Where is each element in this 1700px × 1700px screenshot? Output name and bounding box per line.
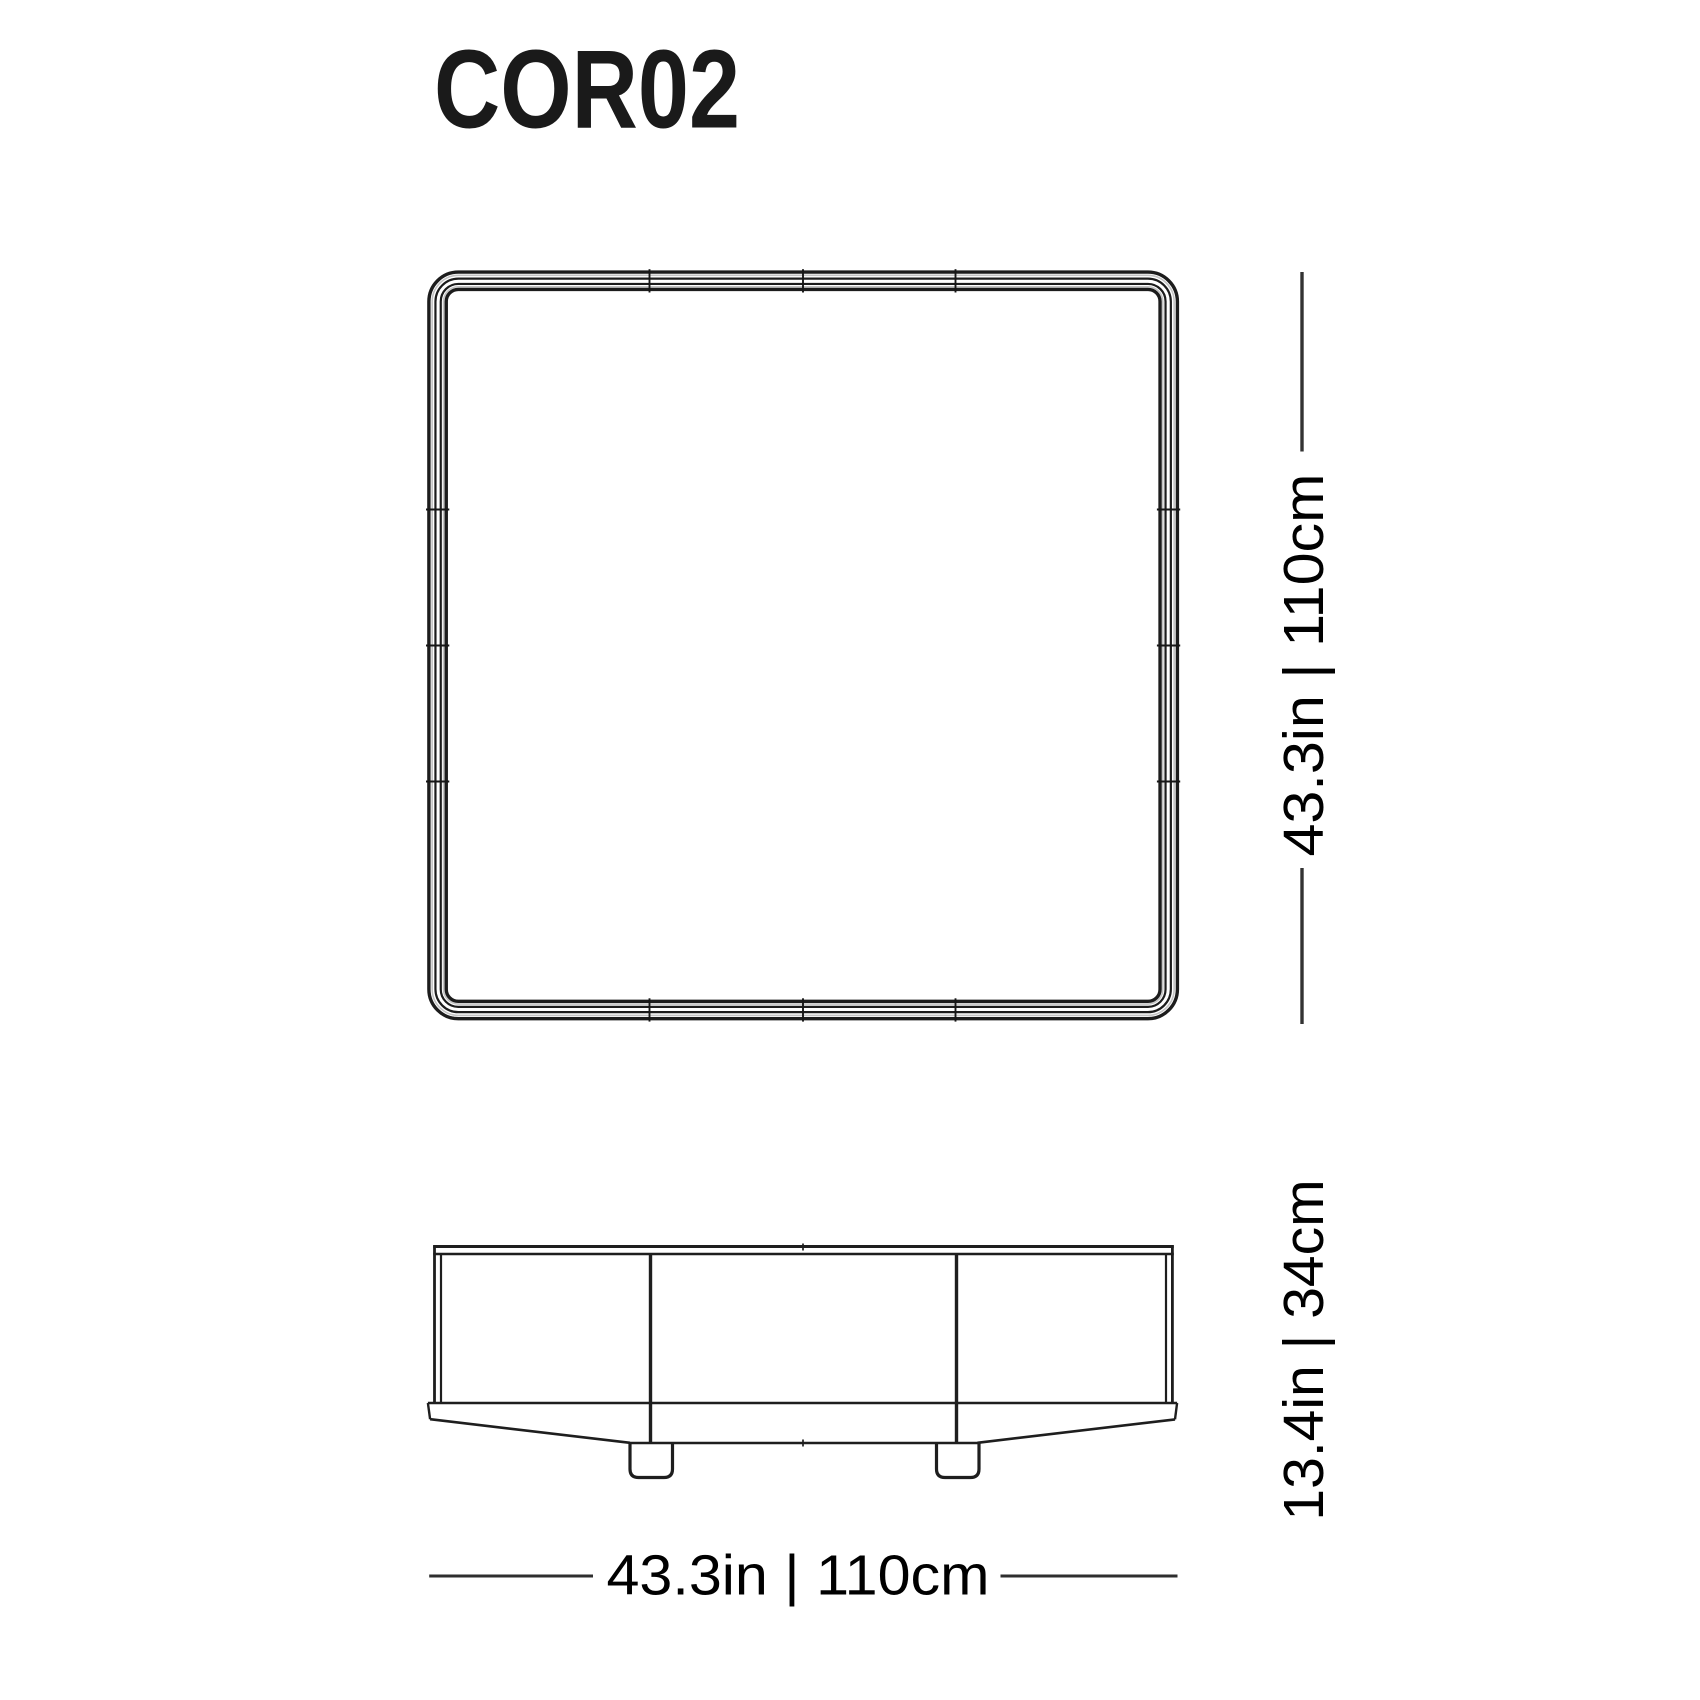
- svg-text:COR02: COR02: [434, 28, 740, 152]
- svg-text:43.3in | 110cm: 43.3in | 110cm: [607, 1544, 990, 1608]
- svg-text:13.4in | 34cm: 13.4in | 34cm: [1272, 1179, 1336, 1520]
- svg-text:43.3in | 110cm: 43.3in | 110cm: [1272, 474, 1336, 857]
